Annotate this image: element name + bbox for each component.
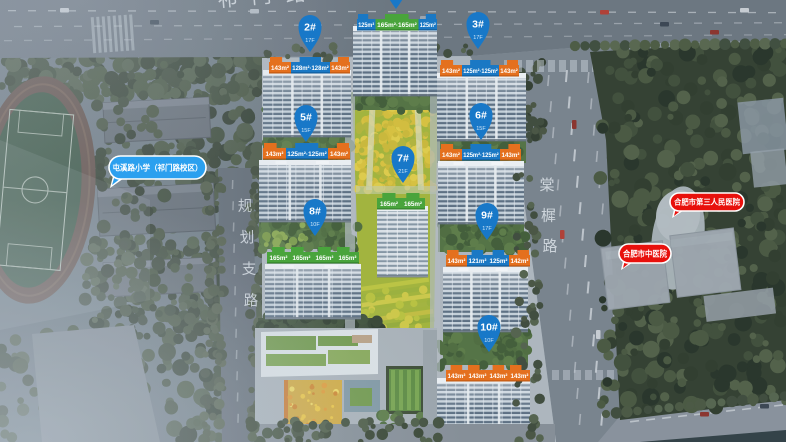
svg-text:143m²: 143m²	[442, 68, 460, 75]
svg-text:祁: 祁	[216, 0, 238, 12]
svg-text:165m²: 165m²	[380, 201, 398, 208]
svg-text:143m²: 143m²	[271, 65, 289, 72]
svg-text:121m²: 121m²	[469, 258, 487, 265]
svg-text:7#: 7#	[397, 153, 409, 165]
svg-text:8#: 8#	[309, 206, 321, 218]
svg-text:165m²: 165m²	[339, 255, 357, 262]
svg-text:5#: 5#	[300, 112, 312, 124]
svg-text:支: 支	[242, 261, 257, 278]
svg-text:143m²: 143m²	[511, 373, 529, 380]
svg-text:125m²: 125m²	[358, 22, 374, 29]
svg-text:165m²: 165m²	[293, 255, 311, 262]
svg-text:15F: 15F	[476, 126, 486, 132]
svg-text:棠: 棠	[539, 177, 554, 194]
svg-text:21F: 21F	[398, 169, 408, 175]
svg-text:屯溪路小学（祁门路校区）: 屯溪路小学（祁门路校区）	[113, 163, 203, 173]
svg-text:125m²·125m²: 125m²·125m²	[287, 151, 327, 158]
svg-text:143m²: 143m²	[448, 258, 466, 265]
svg-text:125m²·125m²: 125m²·125m²	[463, 152, 499, 159]
svg-text:143m²: 143m²	[500, 68, 518, 75]
svg-text:165m²: 165m²	[316, 255, 334, 262]
svg-text:规: 规	[238, 198, 253, 215]
svg-text:合肥市中医院: 合肥市中医院	[622, 248, 667, 258]
svg-text:合肥市第三人民医院: 合肥市第三人民医院	[674, 197, 740, 207]
svg-text:125m²·125m²: 125m²·125m²	[463, 68, 498, 75]
svg-text:125m²: 125m²	[490, 258, 508, 265]
svg-text:6#: 6#	[475, 110, 487, 122]
svg-text:142m²: 142m²	[511, 258, 529, 265]
svg-text:165m²: 165m²	[270, 255, 288, 262]
svg-text:143m²: 143m²	[448, 373, 466, 380]
svg-text:17F: 17F	[473, 35, 483, 41]
svg-text:樨: 樨	[541, 208, 556, 225]
svg-text:2#: 2#	[304, 22, 316, 34]
svg-text:15F: 15F	[301, 128, 311, 134]
svg-text:143m²: 143m²	[266, 151, 284, 158]
svg-text:143m²: 143m²	[331, 65, 349, 72]
svg-text:165m²·165m²: 165m²·165m²	[377, 22, 417, 29]
svg-text:路: 路	[542, 238, 557, 255]
svg-text:143m²: 143m²	[502, 152, 520, 159]
svg-text:3#: 3#	[472, 19, 484, 31]
svg-text:128m²·128m²: 128m²·128m²	[292, 65, 329, 72]
svg-text:10F: 10F	[484, 338, 494, 344]
svg-text:143m²: 143m²	[469, 373, 487, 380]
svg-text:10#: 10#	[480, 322, 498, 334]
svg-text:划: 划	[240, 230, 255, 247]
svg-text:165m²: 165m²	[404, 201, 422, 208]
svg-text:143m²: 143m²	[330, 151, 348, 158]
svg-text:125m²: 125m²	[420, 22, 436, 29]
svg-text:143m²: 143m²	[442, 152, 460, 159]
svg-text:路: 路	[244, 293, 259, 310]
svg-text:17F: 17F	[482, 226, 492, 232]
svg-text:143m²: 143m²	[490, 373, 508, 380]
svg-text:10F: 10F	[310, 222, 320, 228]
svg-text:17F: 17F	[305, 38, 315, 44]
svg-text:9#: 9#	[481, 210, 493, 222]
